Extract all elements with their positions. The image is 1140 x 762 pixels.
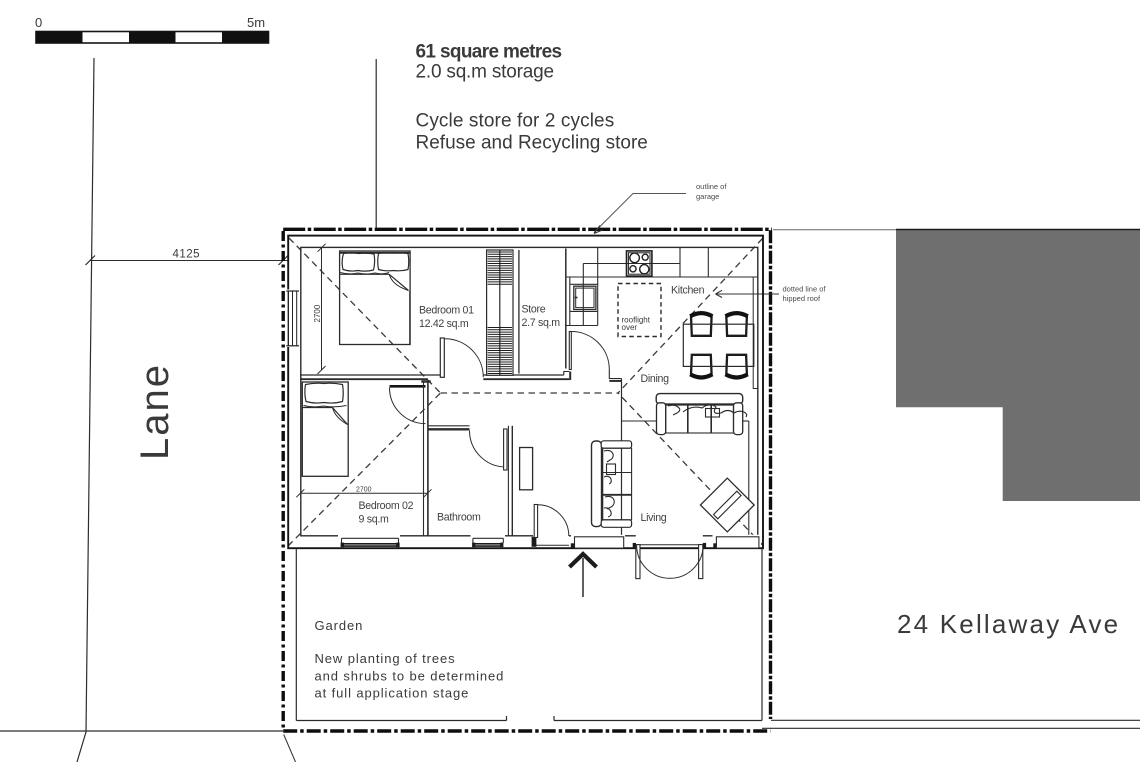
svg-text:Dining: Dining	[641, 373, 670, 385]
svg-text:Bedroom 02: Bedroom 02	[359, 500, 414, 512]
svg-text:0: 0	[35, 15, 42, 30]
svg-text:Refuse and Recycling store: Refuse and Recycling store	[416, 133, 648, 154]
svg-text:2.7 sq.m: 2.7 sq.m	[522, 317, 561, 329]
svg-text:2700: 2700	[356, 487, 372, 494]
svg-text:over: over	[622, 323, 638, 332]
svg-text:Bathroom: Bathroom	[437, 512, 481, 524]
svg-text:at full application stage: at full application stage	[315, 686, 470, 701]
svg-text:dotted line of: dotted line of	[783, 285, 827, 294]
svg-text:New planting of trees: New planting of trees	[315, 651, 456, 666]
svg-text:garage: garage	[696, 192, 719, 201]
svg-text:Living: Living	[641, 512, 667, 524]
svg-text:2700: 2700	[313, 304, 322, 322]
svg-text:12.42 sq.m: 12.42 sq.m	[419, 318, 469, 330]
svg-text:outline of: outline of	[696, 182, 727, 191]
svg-text:Store: Store	[522, 304, 546, 316]
svg-text:2.0 sq.m storage: 2.0 sq.m storage	[416, 62, 554, 83]
svg-text:5m: 5m	[247, 15, 265, 30]
svg-text:Garden: Garden	[315, 618, 364, 633]
svg-text:hipped roof: hipped roof	[783, 294, 821, 303]
svg-text:9 sq.m: 9 sq.m	[359, 514, 389, 526]
svg-text:Cycle store for 2 cycles: Cycle store for 2 cycles	[416, 111, 615, 132]
svg-text:4125: 4125	[173, 249, 201, 261]
svg-text:61 square metres: 61 square metres	[416, 42, 562, 63]
svg-text:Bedroom 01: Bedroom 01	[419, 305, 474, 317]
svg-text:and shrubs to be determined: and shrubs to be determined	[315, 669, 505, 684]
svg-text:Lane: Lane	[133, 363, 177, 460]
svg-text:24 Kellaway Ave: 24 Kellaway Ave	[897, 609, 1120, 639]
svg-text:Kitchen: Kitchen	[671, 285, 705, 297]
